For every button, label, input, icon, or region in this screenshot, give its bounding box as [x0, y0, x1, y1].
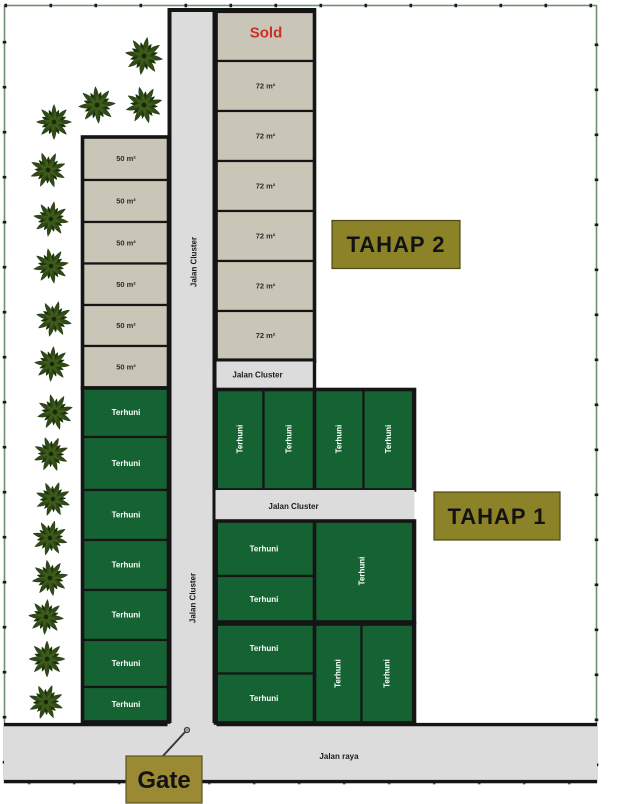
svg-text:50 m²: 50 m² [116, 280, 136, 289]
svg-text:Terhuni: Terhuni [112, 659, 141, 668]
svg-text:72 m²: 72 m² [256, 282, 276, 291]
svg-text:72 m²: 72 m² [256, 331, 276, 340]
svg-text:72 m²: 72 m² [256, 182, 276, 191]
svg-text:72 m²: 72 m² [256, 82, 276, 91]
svg-text:Terhuni: Terhuni [112, 511, 141, 520]
svg-text:TAHAP 2: TAHAP 2 [346, 232, 445, 257]
svg-text:Terhuni: Terhuni [383, 659, 392, 688]
svg-text:Terhuni: Terhuni [250, 595, 279, 604]
svg-text:50 m²: 50 m² [116, 321, 136, 330]
svg-text:50 m²: 50 m² [116, 197, 136, 206]
svg-text:Terhuni: Terhuni [358, 557, 367, 586]
svg-text:Sold: Sold [250, 25, 283, 42]
svg-text:Jalan Cluster: Jalan Cluster [232, 371, 282, 380]
svg-text:50 m²: 50 m² [116, 238, 136, 247]
svg-text:Gate: Gate [137, 767, 190, 794]
svg-text:Terhuni: Terhuni [285, 425, 294, 454]
svg-text:Terhuni: Terhuni [236, 425, 245, 454]
svg-text:72 m²: 72 m² [256, 232, 276, 241]
svg-text:50 m²: 50 m² [116, 154, 136, 163]
svg-text:Jalan Cluster: Jalan Cluster [190, 237, 199, 287]
svg-text:Jalan Cluster: Jalan Cluster [189, 573, 198, 623]
svg-text:Terhuni: Terhuni [112, 408, 141, 417]
svg-text:Jalan raya: Jalan raya [319, 752, 359, 761]
svg-text:Jalan Cluster: Jalan Cluster [268, 502, 318, 511]
svg-text:72 m²: 72 m² [256, 132, 276, 141]
svg-text:Terhuni: Terhuni [384, 425, 393, 454]
svg-text:Terhuni: Terhuni [335, 425, 344, 454]
svg-text:TAHAP 1: TAHAP 1 [447, 504, 546, 529]
svg-text:Terhuni: Terhuni [250, 545, 279, 554]
svg-text:Terhuni: Terhuni [112, 459, 141, 468]
svg-text:Terhuni: Terhuni [112, 611, 141, 620]
svg-text:Terhuni: Terhuni [112, 700, 141, 709]
svg-text:Terhuni: Terhuni [334, 659, 343, 688]
svg-text:Terhuni: Terhuni [112, 561, 141, 570]
svg-text:50 m²: 50 m² [116, 363, 136, 372]
svg-text:Terhuni: Terhuni [250, 694, 279, 703]
svg-text:Terhuni: Terhuni [250, 644, 279, 653]
